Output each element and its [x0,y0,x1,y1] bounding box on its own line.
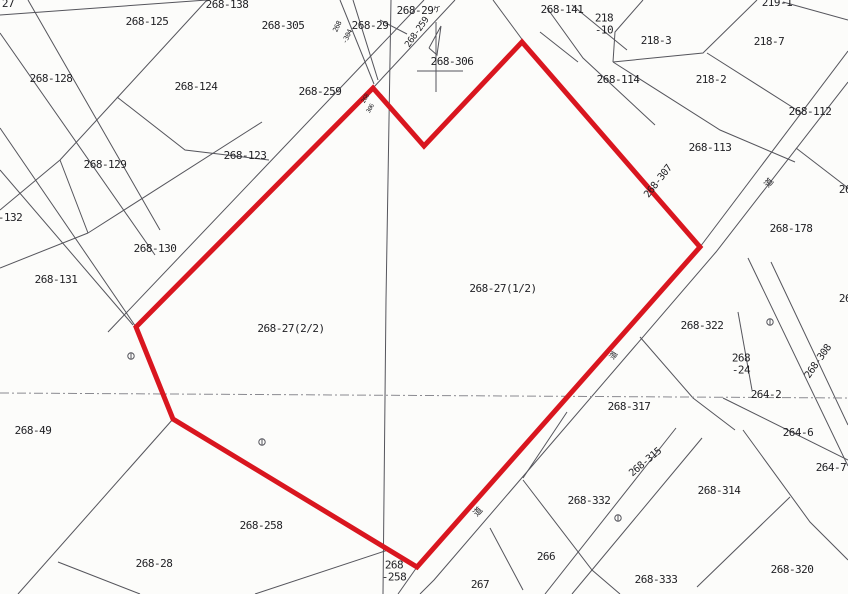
parcel-line [353,0,378,80]
parcel-label: 268-124 [175,81,218,93]
parcel-label: 268-305 [262,20,305,32]
parcel-label: 218-7 [754,36,785,48]
parcel-label: 268-131 [35,274,78,286]
parcel-label: 219-1 [762,0,793,9]
parcel-line [796,148,848,188]
parcel-line [0,0,207,15]
parcel-label: 268-178 [770,223,813,235]
parcel-label: 268-28 [136,558,173,570]
survey-markers [128,319,773,521]
parcel-line [255,550,388,594]
parcel-label: 26 [839,184,848,196]
parcel-label: 218 -10 [595,12,613,35]
parcel-label: 268-141 [541,4,584,16]
parcel-label: 268-333 [635,574,678,586]
parcel-line [429,26,441,55]
parcel-label: 268-259 [299,86,342,98]
parcel-label: 268-128 [30,73,73,85]
section-dash-line [0,393,848,398]
parcel-label: 268-113 [689,142,732,154]
parcel-line [0,33,155,255]
map-vector-layer [0,0,848,594]
parcel-line [771,262,848,425]
parcel-label: 26 [839,293,848,305]
highlighted-parcel-boundary [136,42,700,567]
parcel-label: 218-3 [641,35,672,47]
cadastral-map[interactable]: 27268-125268-138268-305268-29ケ268-29268-… [0,0,848,594]
parcel-label: 268-129 [84,159,127,171]
parcel-line [493,0,524,42]
parcel-label: 268-114 [597,74,640,86]
parcel-label: 264-6 [783,427,814,439]
parcel-label: 268-130 [134,243,177,255]
parcel-label: 27 [2,0,14,10]
parcel-label: 268-123 [224,150,267,162]
parcel-label: 267 [471,579,489,591]
parcel-line [420,82,848,594]
parcel-label: -132 [0,212,22,224]
parcel-line [383,0,391,594]
parcel-label: 268-258 [240,520,283,532]
parcel-label: 268-322 [681,320,724,332]
parcel-label: 268-112 [789,106,832,118]
parcel-boundary-lines [0,0,848,594]
parcel-label: 268-29 [397,5,434,17]
parcel-label: 268-27(1/2) [469,283,536,295]
parcel-line [640,337,735,430]
parcel-line [490,528,523,590]
parcel-label: 268-138 [206,0,249,11]
parcel-label: 268-332 [568,495,611,507]
parcel-label: 218-2 [696,74,727,86]
parcel-line [783,2,848,20]
parcel-label: 268-49 [15,425,52,437]
parcel-label: 268-125 [126,16,169,28]
parcel-line [0,170,133,325]
parcel-line [58,562,140,594]
parcel-label: 268-306 [431,56,474,68]
parcel-label: 266 [537,551,555,563]
parcel-line [88,122,262,233]
parcel-label: 268-317 [608,401,651,413]
parcel-line [613,0,643,62]
parcel-line [743,430,848,560]
parcel-label: 268-27(2/2) [257,323,324,335]
parcel-label: 264-2 [751,389,782,401]
parcel-label: 268-314 [698,485,741,497]
parcel-label: 268-29 [352,20,389,32]
parcel-label: 268-320 [771,564,814,576]
parcel-label: 268 -258 [382,559,407,582]
parcel-label: 264-7 [816,462,847,474]
parcel-line [540,32,578,62]
parcel-label: 268 -24 [732,352,750,375]
parcel-line [108,0,424,332]
